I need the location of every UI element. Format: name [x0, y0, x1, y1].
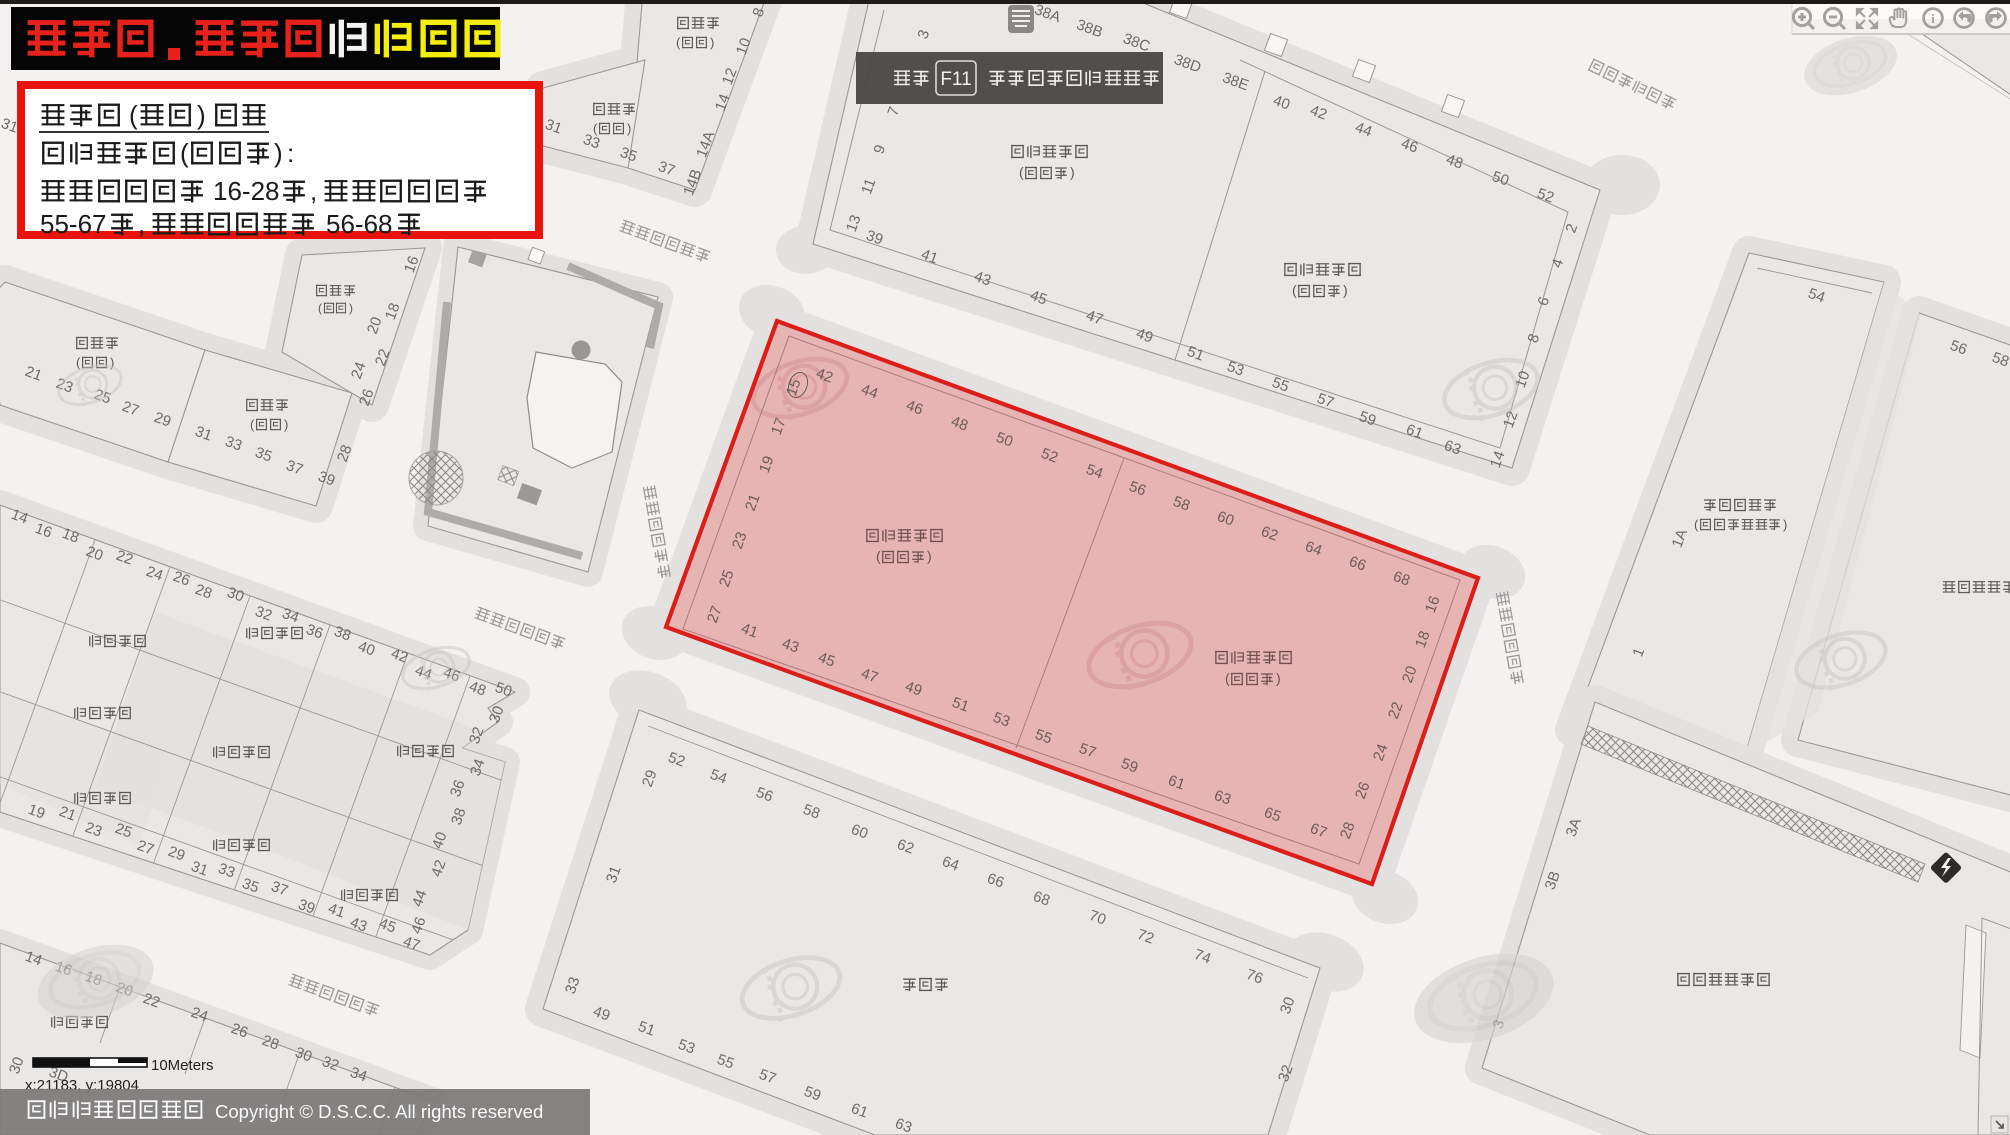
svg-text:,: ,: [138, 209, 145, 239]
svg-text:55-67: 55-67: [40, 209, 107, 239]
svg-text:): ): [274, 138, 283, 168]
svg-text:): ): [627, 121, 631, 136]
svg-text:(: (: [76, 355, 81, 370]
svg-text:(: (: [1694, 517, 1699, 532]
svg-text::: :: [287, 138, 294, 168]
svg-text:): ): [1783, 517, 1787, 532]
svg-text:(: (: [180, 138, 189, 168]
svg-text:): ): [197, 100, 206, 130]
svg-text:): ): [349, 301, 353, 315]
svg-text:,: ,: [310, 176, 317, 206]
svg-text:Copyright © D.S.C.C. All right: Copyright © D.S.C.C. All rights reserved: [215, 1101, 543, 1122]
svg-text:i: i: [1931, 11, 1935, 26]
svg-text:): ): [927, 548, 932, 564]
svg-text:(: (: [676, 35, 681, 50]
svg-text:F11: F11: [940, 69, 971, 90]
svg-text:): ): [710, 35, 714, 50]
svg-text:56-68: 56-68: [326, 209, 393, 239]
svg-text:): ): [1343, 282, 1348, 298]
svg-text:(: (: [318, 301, 322, 315]
svg-text:): ): [1276, 670, 1281, 686]
svg-text:(: (: [129, 100, 138, 130]
svg-text:(: (: [1292, 282, 1297, 298]
svg-text:): ): [284, 417, 288, 432]
svg-text:(: (: [1225, 670, 1230, 686]
svg-text:(: (: [250, 417, 255, 432]
svg-text:): ): [1070, 164, 1075, 180]
svg-text:(: (: [1019, 164, 1024, 180]
svg-text:10Meters: 10Meters: [151, 1057, 214, 1074]
svg-text:16-28: 16-28: [213, 176, 280, 206]
svg-text:(: (: [876, 548, 881, 564]
